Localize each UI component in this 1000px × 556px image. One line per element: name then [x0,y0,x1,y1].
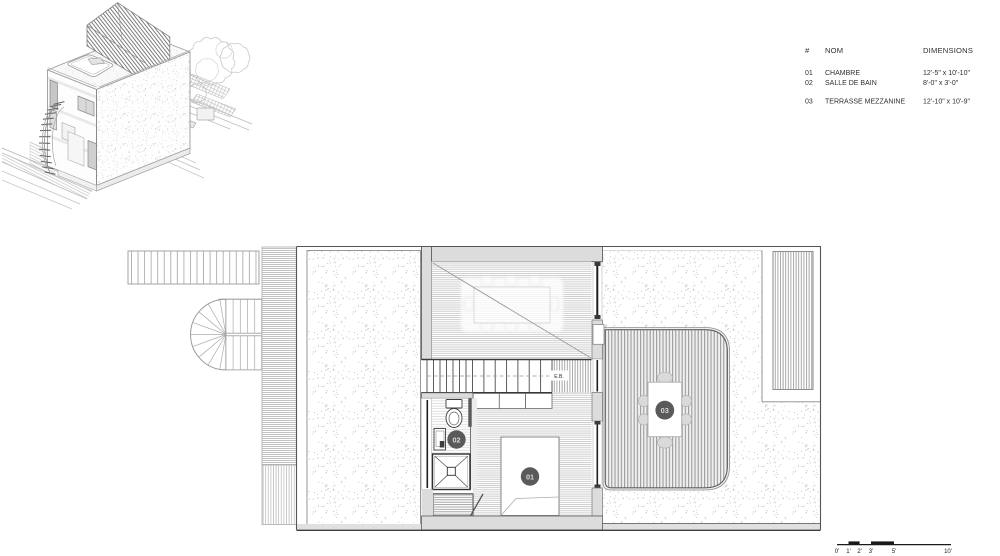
svg-text:TERRASSE MEZZANINE: TERRASSE MEZZANINE [825,99,905,106]
svg-text:NOM: NOM [825,46,843,55]
svg-text:02: 02 [805,80,813,87]
svg-text:2': 2' [857,549,861,555]
svg-text:1': 1' [846,549,850,555]
svg-text:0': 0' [835,549,839,555]
svg-text:10': 10' [944,549,952,555]
svg-text:CHAMBRE: CHAMBRE [825,70,860,77]
svg-text:02: 02 [452,436,460,445]
svg-text:8'-0" x 3'-0": 8'-0" x 3'-0" [923,80,959,87]
svg-text:03: 03 [805,99,813,106]
svg-text:DIMENSIONS: DIMENSIONS [923,46,973,55]
svg-text:3': 3' [869,549,873,555]
svg-text:12'-10" x 10'-9": 12'-10" x 10'-9" [923,99,970,106]
svg-text:01: 01 [805,70,813,77]
svg-text:03: 03 [661,406,669,415]
svg-text:5': 5' [892,549,896,555]
svg-text:01: 01 [526,473,534,482]
svg-text:E.B.: E.B. [554,374,563,380]
svg-text:SALLE DE BAIN: SALLE DE BAIN [825,80,877,87]
svg-text:12'-5" x 10'-10": 12'-5" x 10'-10" [923,70,970,77]
svg-text:#: # [805,46,810,55]
